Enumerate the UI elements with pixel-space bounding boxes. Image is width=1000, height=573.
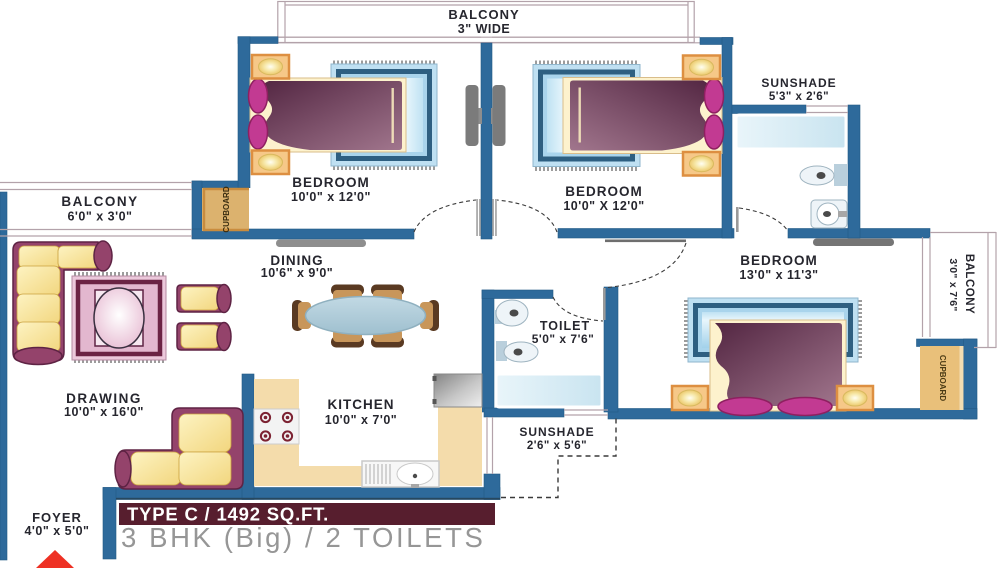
svg-text:CUPBOARD: CUPBOARD	[222, 186, 231, 232]
svg-text:FOYER: FOYER	[32, 510, 82, 525]
svg-text:10'0" x 12'0": 10'0" x 12'0"	[291, 190, 371, 204]
svg-text:DRAWING: DRAWING	[66, 391, 142, 406]
svg-text:4'0" x 5'0": 4'0" x 5'0"	[24, 524, 89, 538]
svg-text:5'3" x 2'6": 5'3" x 2'6"	[769, 91, 829, 103]
svg-text:2'6" x 5'6": 2'6" x 5'6"	[527, 440, 587, 452]
svg-text:3'0" x 7'6": 3'0" x 7'6"	[947, 258, 959, 311]
svg-text:10'0" X 12'0": 10'0" X 12'0"	[563, 199, 644, 213]
svg-text:10'0" x 16'0": 10'0" x 16'0"	[64, 405, 144, 419]
svg-text:BALCONY: BALCONY	[448, 7, 519, 22]
svg-text:BEDROOM: BEDROOM	[565, 184, 643, 199]
svg-text:BALCONY: BALCONY	[61, 194, 138, 209]
svg-text:BEDROOM: BEDROOM	[292, 175, 370, 190]
svg-text:3 BHK (Big) / 2 TOILETS: 3 BHK (Big) / 2 TOILETS	[121, 522, 485, 553]
svg-text:TOILET: TOILET	[540, 319, 590, 333]
svg-text:3" WIDE: 3" WIDE	[458, 22, 511, 36]
svg-text:10'6" x 9'0": 10'6" x 9'0"	[261, 266, 333, 280]
svg-text:KITCHEN: KITCHEN	[328, 397, 395, 412]
svg-text:5'0" x 7'6": 5'0" x 7'6"	[532, 332, 595, 346]
svg-text:BALCONY: BALCONY	[963, 254, 975, 314]
svg-text:BEDROOM: BEDROOM	[740, 253, 818, 268]
svg-text:SUNSHADE: SUNSHADE	[519, 425, 594, 439]
svg-text:13'0" x 11'3": 13'0" x 11'3"	[739, 268, 818, 282]
svg-text:6'0" x 3'0": 6'0" x 3'0"	[67, 210, 132, 224]
svg-text:SUNSHADE: SUNSHADE	[761, 76, 836, 90]
svg-text:CUPBOARD: CUPBOARD	[938, 355, 947, 401]
svg-text:10'0" x 7'0": 10'0" x 7'0"	[325, 413, 397, 427]
